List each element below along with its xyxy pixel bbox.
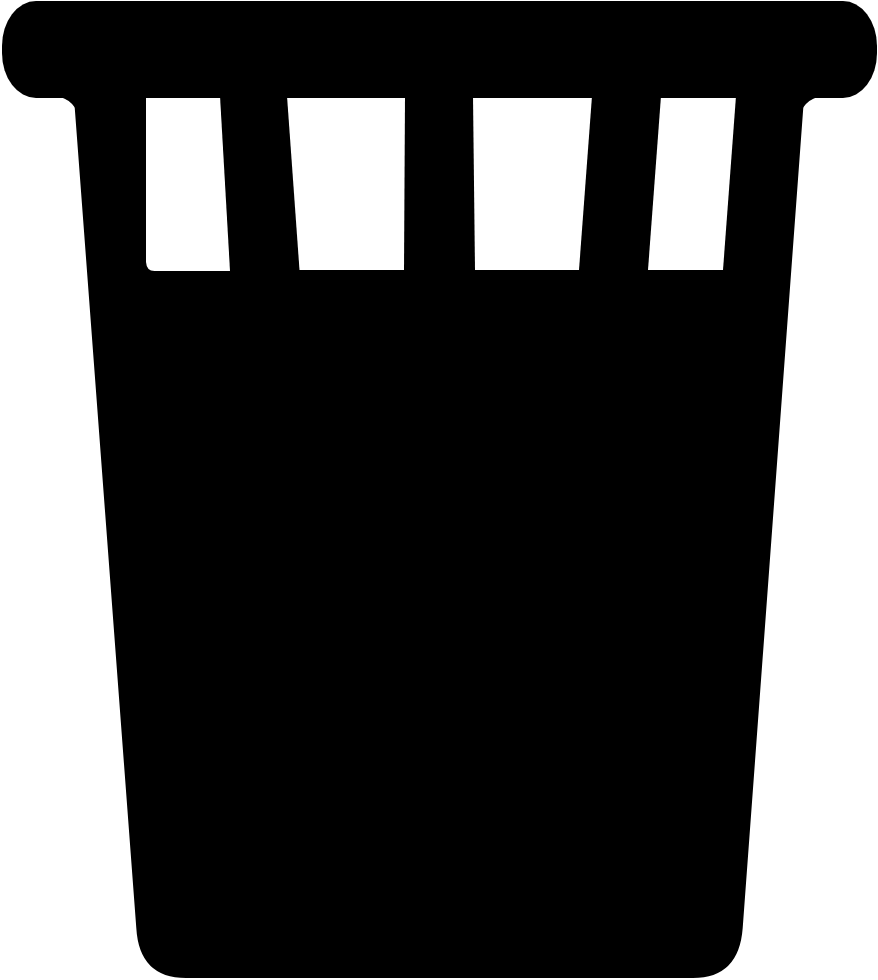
vent-slot-3 xyxy=(473,96,592,270)
vent-slot-1 xyxy=(146,96,230,271)
icon-canvas xyxy=(0,0,878,980)
vent-slot-4 xyxy=(648,96,736,270)
vent-slot-2 xyxy=(287,96,405,270)
basket-rim xyxy=(2,1,877,98)
trash-basket-icon xyxy=(0,0,878,980)
